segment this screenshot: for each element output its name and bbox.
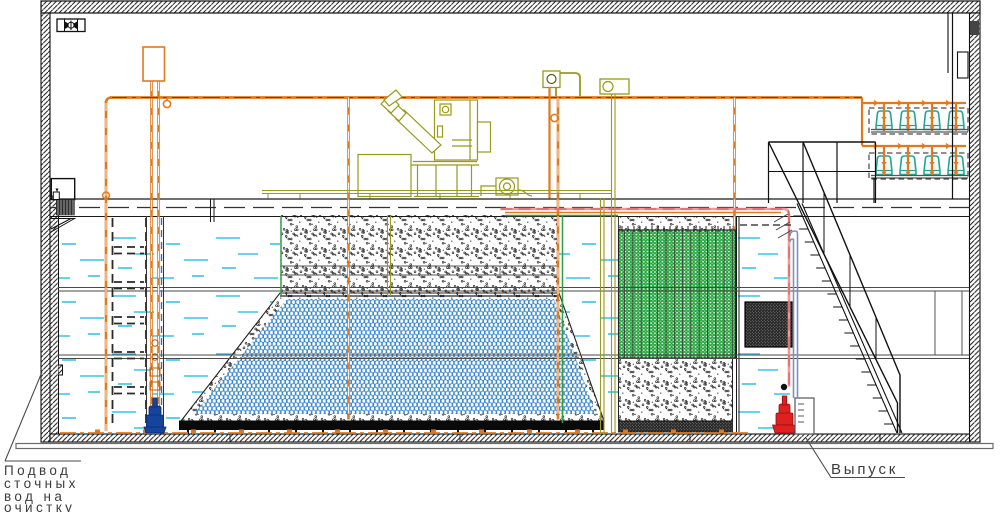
svg-text:очистку: очистку xyxy=(4,500,75,512)
svg-text:Выпуск: Выпуск xyxy=(831,461,898,478)
